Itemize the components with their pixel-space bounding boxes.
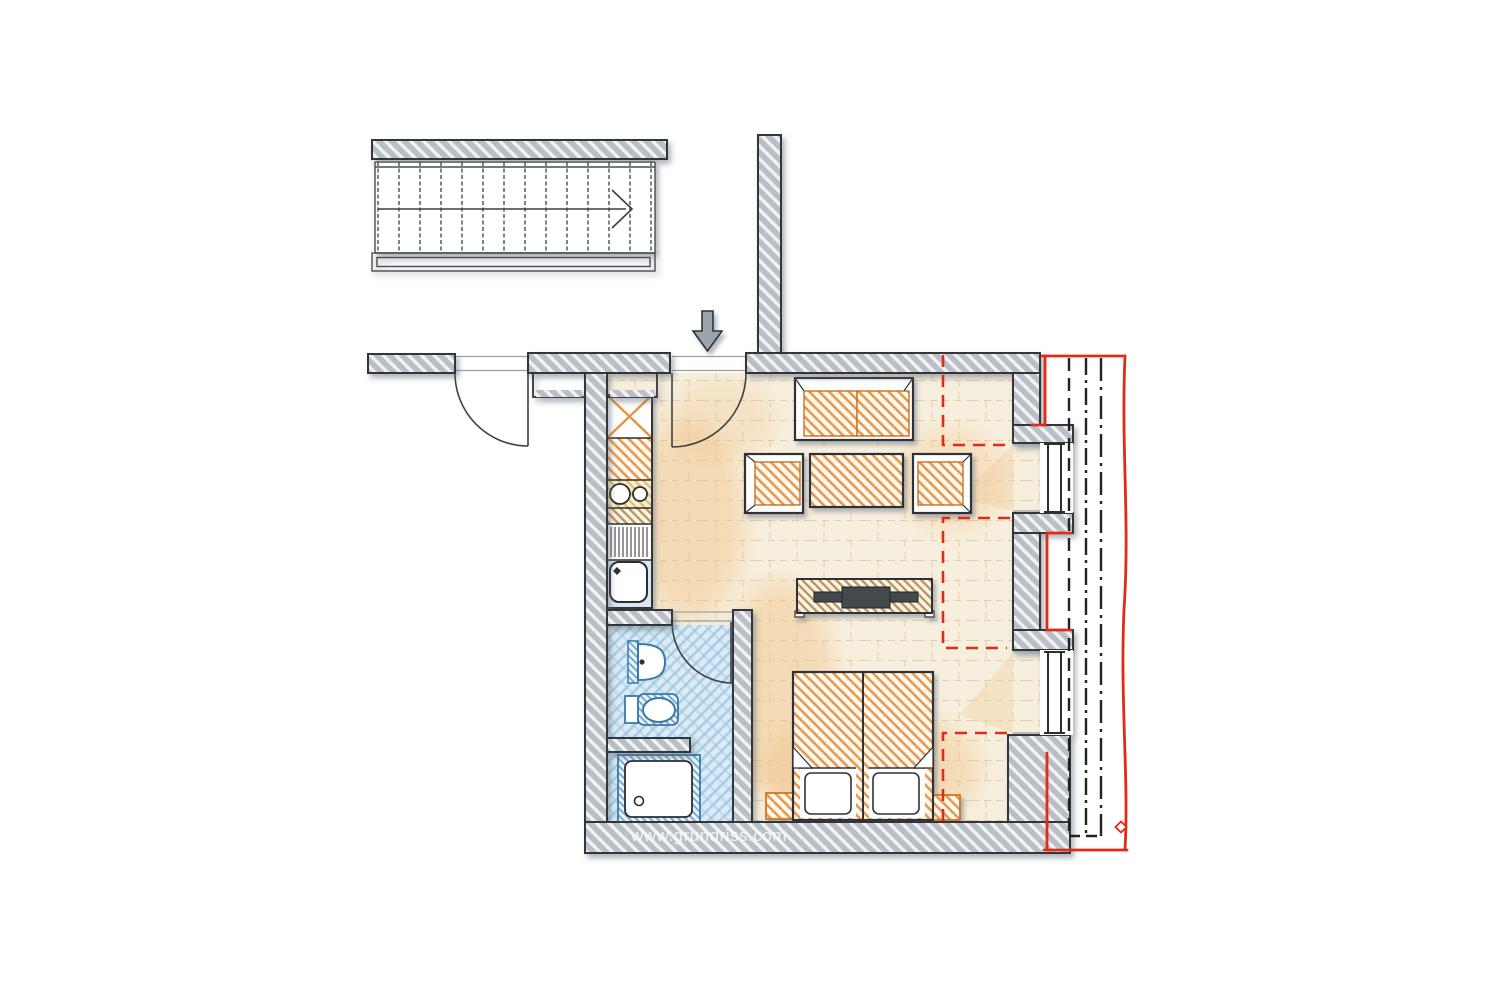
bathroom (607, 625, 733, 822)
sink-basin (610, 562, 647, 602)
tv-base (842, 587, 890, 608)
basin-faucet (639, 659, 644, 664)
nightstand-right (933, 795, 960, 820)
sofa-cushion (857, 391, 909, 436)
kitchen-cabinet (607, 438, 652, 480)
staircase (372, 140, 667, 271)
dormer1-top-cheek (1013, 425, 1073, 443)
toilet (625, 694, 678, 725)
stair-handrail (372, 253, 655, 271)
toilet-tank (625, 696, 638, 723)
toilet-bowl (643, 698, 675, 722)
armchair-cushion (918, 462, 963, 505)
right-wall-upper (1013, 373, 1040, 425)
right-wall-lower-block (1008, 735, 1070, 822)
cooktop-burner-small (633, 487, 647, 501)
sofa (795, 378, 913, 440)
left-wall (585, 373, 607, 822)
right-wall-middle (1013, 533, 1040, 630)
shower-drain (635, 797, 644, 806)
roof-edge-dashed-lines (1069, 358, 1103, 836)
top-wall-middle (528, 353, 670, 373)
armchair-cushion (755, 462, 800, 505)
bathroom-partition (607, 738, 690, 752)
kitchenette (607, 395, 652, 608)
floorplan-canvas: www.grundriss.com (0, 0, 1500, 1000)
cooktop-burner-large (610, 484, 630, 504)
armchair-right (913, 454, 971, 513)
bathroom-right-wall (733, 610, 752, 822)
shower-tray (625, 761, 692, 817)
sofa-cushion (804, 391, 857, 436)
armchair-left (745, 454, 803, 513)
tv-sideboard (795, 579, 934, 617)
stair-top-wall (372, 140, 667, 159)
pillow-left (805, 773, 851, 814)
entrance-arrow-icon (693, 311, 722, 351)
top-wall-left (368, 354, 455, 373)
sink-drainer (607, 524, 652, 560)
pillow-right (873, 773, 919, 814)
watermark: www.grundriss.com (630, 826, 787, 845)
coffee-table (810, 454, 903, 507)
double-bed-group (766, 672, 960, 820)
top-wall-right (746, 353, 1040, 373)
dormer2-top-cheek (1013, 630, 1073, 650)
dormer1-bottom-cheek (1013, 513, 1073, 533)
exterior-wall-upper (758, 135, 781, 355)
nightstand-left (766, 793, 793, 819)
corridor-door (455, 357, 528, 447)
stair-flight (375, 161, 655, 253)
bathroom-top-wall (607, 610, 672, 625)
wall-niche-left (533, 373, 585, 397)
shower (618, 755, 700, 822)
double-bed (793, 672, 933, 820)
counter-strip (607, 508, 652, 524)
